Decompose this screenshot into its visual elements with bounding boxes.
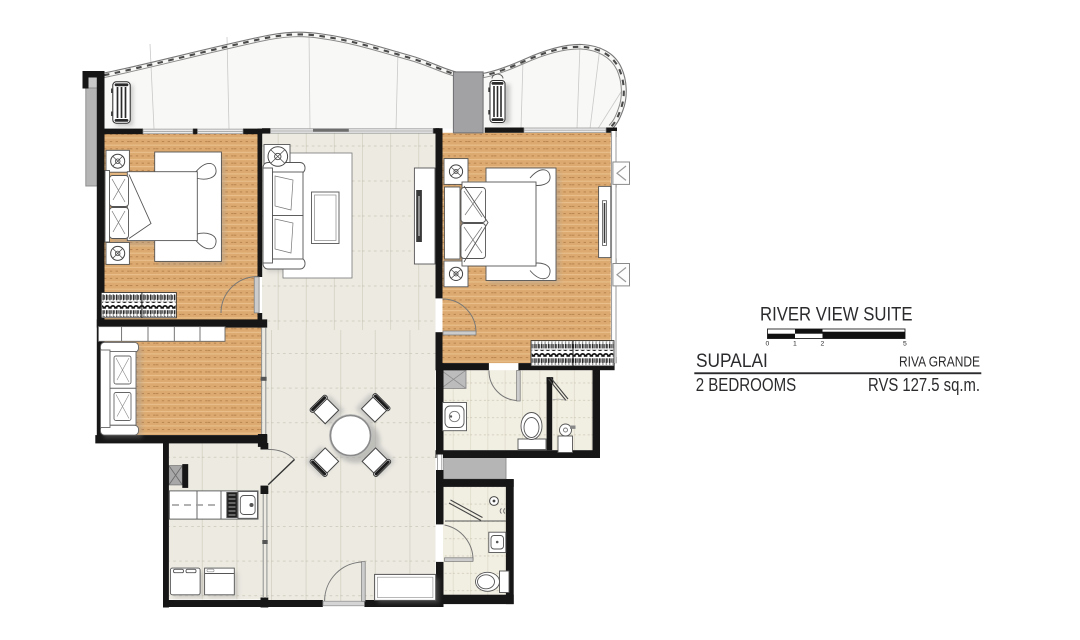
svg-text:2: 2 <box>821 341 825 348</box>
svg-text:RVS 127.5 sq.m.: RVS 127.5 sq.m. <box>868 375 980 395</box>
svg-text:5: 5 <box>903 341 907 348</box>
svg-text:SUPALAI: SUPALAI <box>696 351 768 372</box>
svg-text:RIVA GRANDE: RIVA GRANDE <box>899 354 980 370</box>
svg-text:2 BEDROOMS: 2 BEDROOMS <box>696 375 797 395</box>
svg-text:RIVER VIEW SUITE: RIVER VIEW SUITE <box>760 305 913 326</box>
svg-text:1: 1 <box>793 341 797 348</box>
svg-text:0: 0 <box>766 341 770 348</box>
